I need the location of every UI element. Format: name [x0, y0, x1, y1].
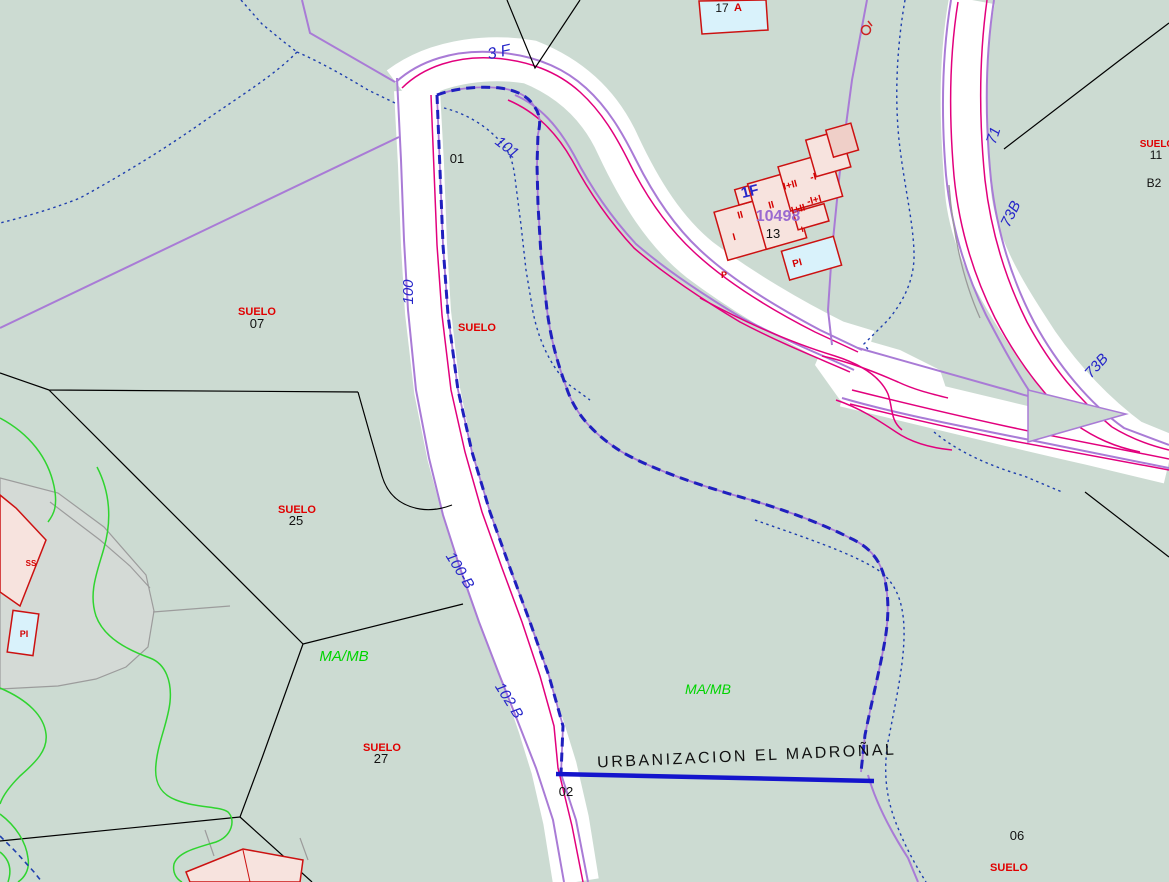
suelo-label-25: SUELO: [278, 504, 316, 516]
suelo-label-11: SUELO: [1140, 139, 1169, 150]
cadastral-map[interactable]: 3 F101100100-B102 B7173B73B1F10498010725…: [0, 0, 1169, 882]
suelo-label-07: SUELO: [238, 306, 276, 318]
suelo-label-27: SUELO: [363, 742, 401, 754]
building-label-a: A: [734, 2, 742, 14]
parcel-label-11: 11: [1150, 148, 1163, 162]
parcel-label-06: 06: [1010, 828, 1024, 843]
street-label-100: 100: [400, 279, 417, 305]
building-height-label: SS: [26, 559, 37, 568]
building-height-label: P: [721, 270, 727, 280]
parcel-label-07: 07: [250, 316, 264, 331]
pool-label-pi-left: PI: [20, 629, 29, 639]
suelo-label-roadside: SUELO: [458, 322, 496, 334]
parcel-label-02: 02: [559, 784, 573, 799]
parcel-label-13: 13: [766, 226, 780, 241]
parcel-label-01: 01: [450, 151, 464, 166]
suelo-label-06: SUELO: [990, 862, 1028, 874]
building-label-17: 17: [715, 1, 729, 15]
parcel-label-b2: B2: [1147, 176, 1162, 190]
zone-label-mamb-left: MA/MB: [319, 648, 368, 665]
zone-label-mamb-right: MA/MB: [685, 681, 731, 697]
